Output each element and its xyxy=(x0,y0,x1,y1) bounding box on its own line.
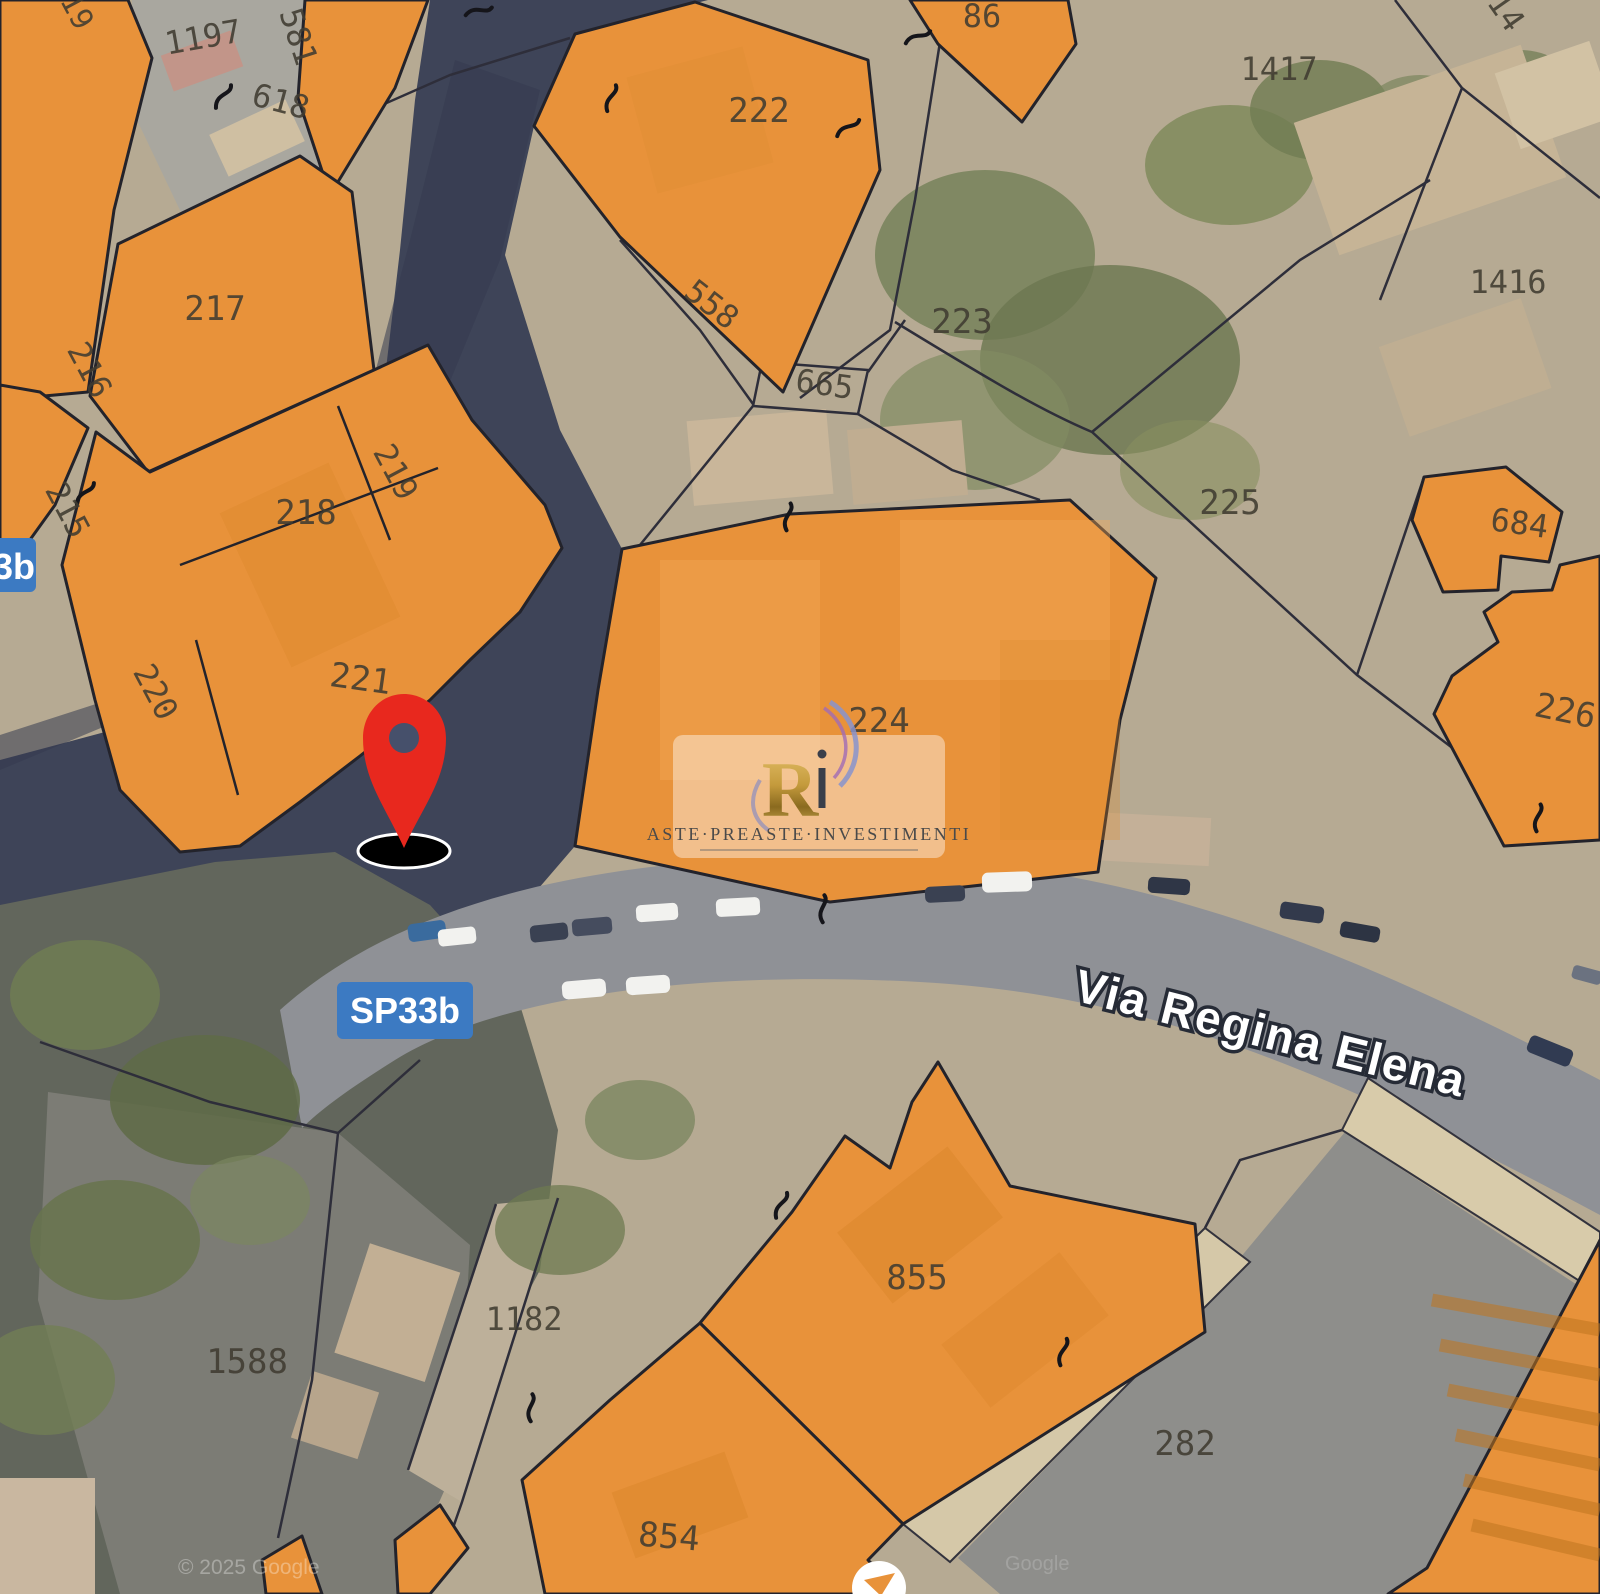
watermark-monogram: R xyxy=(762,746,820,833)
parcel-label: 222 xyxy=(728,91,789,131)
parcel-label: 854 xyxy=(637,1514,702,1559)
cadastral-map[interactable]: 19 1197 581 618 86 222 1417 14 217 216 5… xyxy=(0,0,1600,1594)
watermark-brand: ASTE·PREASTE·INVESTIMENTI xyxy=(647,824,971,844)
map-canvas[interactable]: 19 1197 581 618 86 222 1417 14 217 216 5… xyxy=(0,0,1600,1594)
parcel-label: 223 xyxy=(931,302,992,342)
parcel-label: 225 xyxy=(1199,483,1260,523)
route-badge-sp33b: SP33b xyxy=(337,982,473,1039)
parcel-label: 665 xyxy=(793,361,856,407)
parcel-label: 86 xyxy=(963,0,1002,35)
parcel-label: 1182 xyxy=(485,1300,562,1338)
parcel-label: 221 xyxy=(327,655,393,703)
route-badge-left-partial: 3b xyxy=(0,538,36,592)
location-pin[interactable] xyxy=(358,694,450,868)
parcel-label: 1588 xyxy=(206,1342,288,1382)
parcel-label: 218 xyxy=(275,493,336,533)
map-attribution: © 2025 Google xyxy=(178,1556,320,1579)
parcel-label: 282 xyxy=(1154,1424,1215,1464)
parcel-label: 1417 xyxy=(1240,50,1317,88)
pin-hole xyxy=(389,723,419,753)
parcel-label: 855 xyxy=(886,1258,947,1298)
route-badge-label: SP33b xyxy=(350,990,460,1031)
map-attribution-ghost: Google xyxy=(1005,1553,1070,1575)
parcel-label: 1416 xyxy=(1469,263,1546,301)
parcel-label: 684 xyxy=(1488,500,1551,546)
route-badge-left-label: 3b xyxy=(0,546,35,587)
parcel-label: 217 xyxy=(184,289,245,329)
